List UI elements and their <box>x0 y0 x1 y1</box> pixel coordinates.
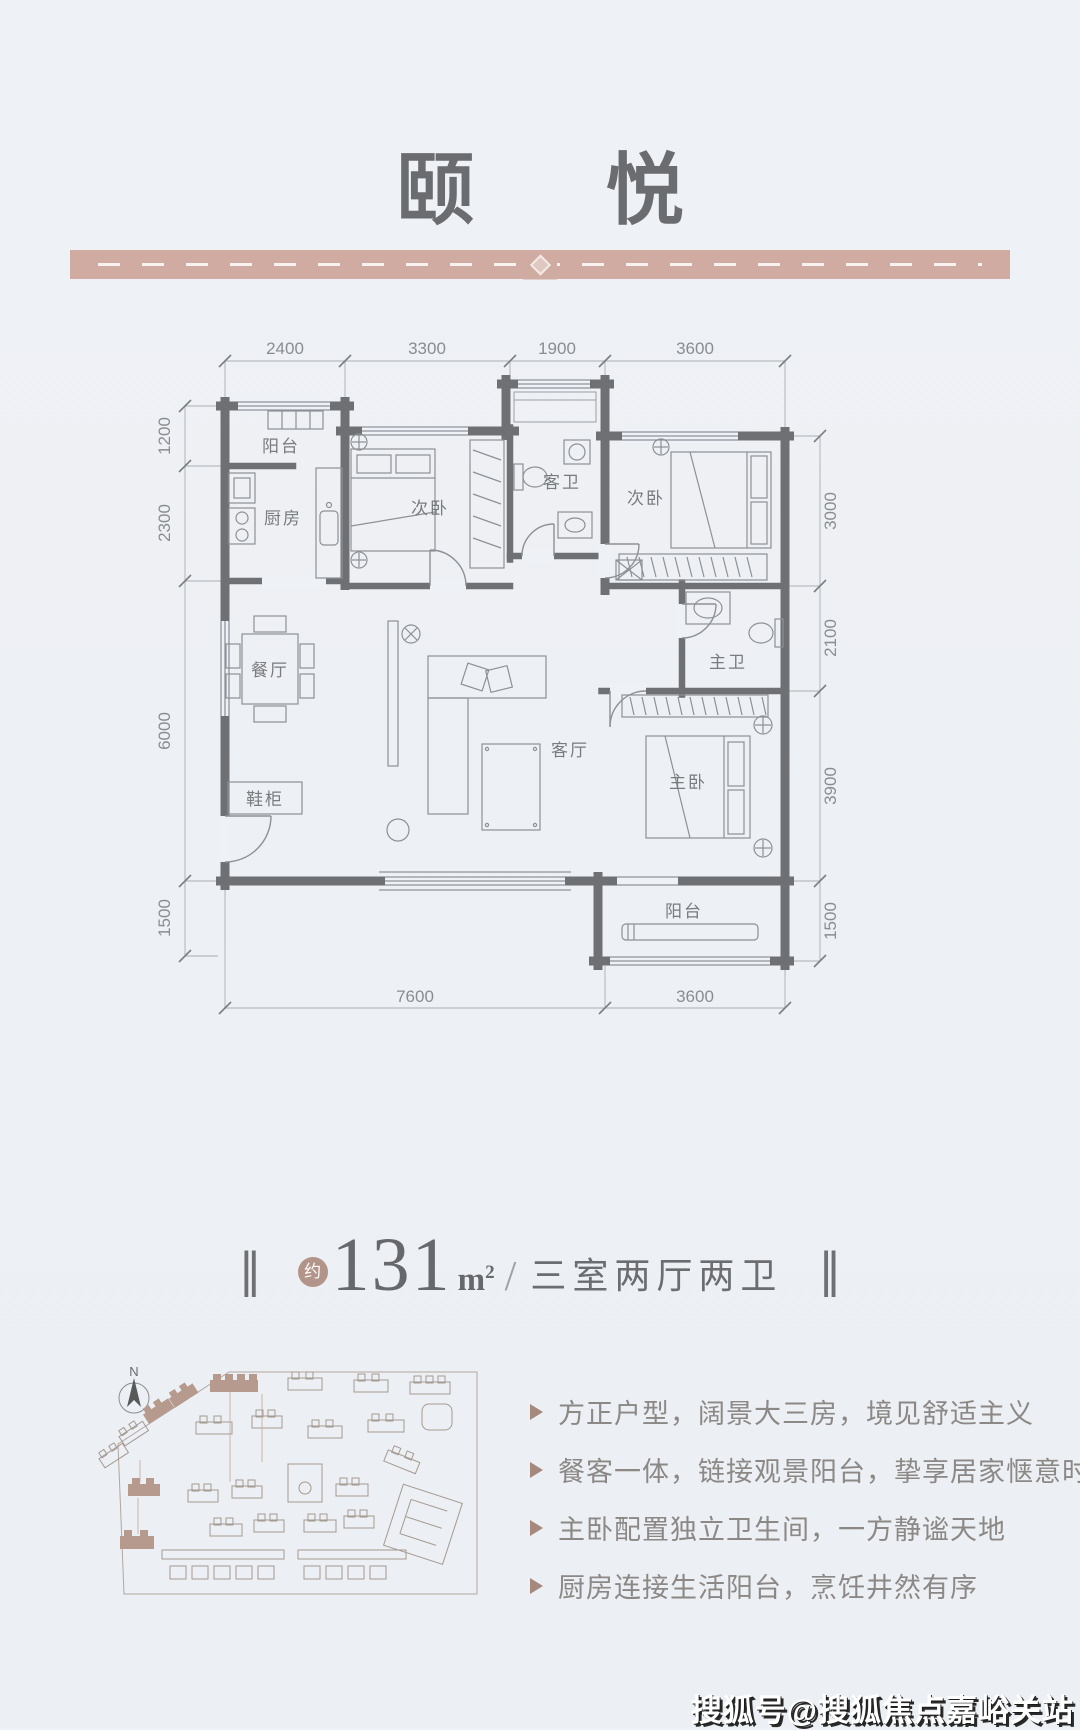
arrow-icon <box>530 1404 543 1420</box>
dim-top-1: 3300 <box>408 339 446 358</box>
area-summary: ‖ 约 131 m2 / 三室两厅两卫 ‖ <box>0 1222 1080 1309</box>
diamond-ornament-icon <box>523 250 557 279</box>
dim-top-2: 1900 <box>538 339 576 358</box>
floor-plan-drawing: 2400 3300 1900 3600 1200 2300 6000 1500 … <box>130 316 860 1056</box>
feature-item: 主卧配置独立卫生间，一方静谧天地 <box>530 1508 1080 1547</box>
page-title: 颐 悦 <box>0 128 1080 240</box>
highlighted-buildings <box>120 1374 258 1549</box>
dim-right-0: 3000 <box>821 492 840 530</box>
room-label-bedroom-right: 次卧 <box>627 489 665 508</box>
double-bar-right: ‖ <box>818 1243 841 1297</box>
approx-badge: 约 <box>298 1257 328 1287</box>
dim-right-3: 1500 <box>821 902 840 940</box>
feature-text: 餐客一体，链接观景阳台，挚享居家惬意时光 <box>558 1450 1080 1489</box>
compass-label: N <box>129 1364 138 1379</box>
arrow-icon <box>530 1462 543 1478</box>
room-label-master-bedroom: 主卧 <box>669 773 707 792</box>
arrow-icon <box>530 1578 543 1594</box>
feature-item: 方正户型，阔景大三房，境见舒适主义 <box>530 1392 1080 1431</box>
area-slash: / <box>505 1253 517 1301</box>
dim-left-3: 1500 <box>155 899 174 937</box>
watermark: 搜狐号@搜狐焦点嘉峪关站 <box>691 1685 1074 1730</box>
room-label-guest-bath: 客卫 <box>543 473 581 492</box>
area-unit: m2 <box>458 1262 495 1299</box>
feature-text: 方正户型，阔景大三房，境见舒适主义 <box>558 1392 1034 1431</box>
room-label-kitchen: 厨房 <box>264 509 302 528</box>
dim-left-0: 1200 <box>155 417 174 455</box>
dim-right-1: 2100 <box>821 619 840 657</box>
room-label-balcony-bottom: 阳台 <box>665 902 703 921</box>
dim-top-0: 2400 <box>266 339 304 358</box>
room-configuration: 三室两厅两卫 <box>530 1247 782 1299</box>
room-label-dining: 餐厅 <box>251 661 289 680</box>
dim-bottom-1: 3600 <box>676 987 714 1006</box>
feature-text: 主卧配置独立卫生间，一方静谧天地 <box>558 1508 1006 1547</box>
room-label-master-bath: 主卫 <box>709 653 747 672</box>
dim-extension-lines <box>185 361 820 1008</box>
site-plan: N <box>92 1364 484 1607</box>
compass-icon: N <box>119 1364 149 1413</box>
site-plan-drawing: N <box>92 1364 484 1602</box>
feature-item: 餐客一体，链接观景阳台，挚享居家惬意时光 <box>530 1450 1080 1489</box>
dim-top-3: 3600 <box>676 339 714 358</box>
furniture <box>226 411 783 940</box>
dim-right-2: 3900 <box>821 767 840 805</box>
area-value: 131 <box>332 1222 452 1309</box>
feature-item: 厨房连接生活阳台，烹饪井然有序 <box>530 1566 1080 1605</box>
room-label-shoe-cabinet: 鞋柜 <box>246 790 284 809</box>
room-label-balcony-top: 阳台 <box>262 437 300 456</box>
room-label-bedroom-left: 次卧 <box>411 499 449 518</box>
room-label-living: 客厅 <box>551 741 589 760</box>
entry-bay <box>514 392 596 422</box>
dim-left-2: 6000 <box>155 712 174 750</box>
double-bar-left: ‖ <box>239 1243 262 1297</box>
floor-plan: 2400 3300 1900 3600 1200 2300 6000 1500 … <box>130 316 860 1061</box>
dim-left-1: 2300 <box>155 504 174 542</box>
feature-list: 方正户型，阔景大三房，境见舒适主义 餐客一体，链接观景阳台，挚享居家惬意时光 主… <box>530 1392 1080 1624</box>
arrow-icon <box>530 1520 543 1536</box>
feature-text: 厨房连接生活阳台，烹饪井然有序 <box>558 1566 978 1605</box>
divider-band <box>70 250 1010 279</box>
dim-bottom-0: 7600 <box>396 987 434 1006</box>
